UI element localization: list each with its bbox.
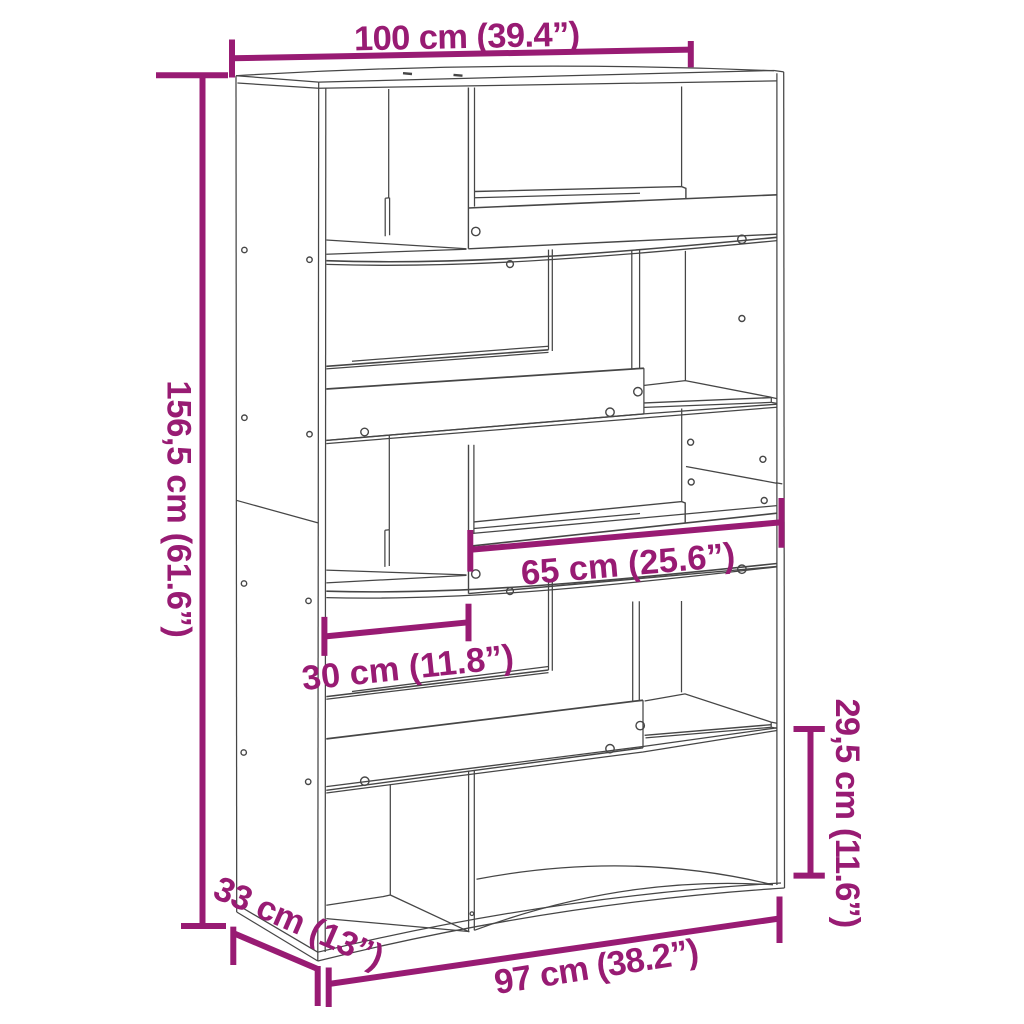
svg-text:156,5 cm (61.6”): 156,5 cm (61.6”) [160, 380, 198, 637]
svg-text:29,5 cm (11.6”): 29,5 cm (11.6”) [828, 699, 866, 928]
svg-text:100 cm (39.4”): 100 cm (39.4”) [354, 16, 580, 59]
